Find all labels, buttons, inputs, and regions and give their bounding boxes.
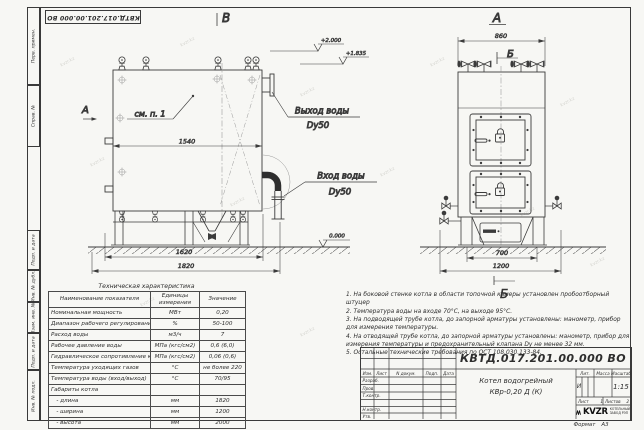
table-row: - высотамм2000 [49, 418, 246, 429]
support-frame [111, 211, 250, 245]
ground-hatch [88, 248, 350, 255]
note-3: 3. На подводящей трубе котла, до запорно… [346, 317, 633, 333]
dim-700: 700 [496, 249, 508, 257]
format-value: А3 [601, 422, 608, 428]
product-name-line2: КВр-0,20 Д (К) [490, 387, 543, 398]
spec-table: Наименование показателя Единицы измерени… [48, 291, 246, 429]
table-row: Номинальная мощностьМВт0,20 [49, 308, 246, 319]
stamp-designation: КВТД.017.201.00.000 ВО [456, 348, 630, 369]
table-header-row: Наименование показателя Единицы измерени… [49, 292, 246, 308]
stamp-col-doc: N докум. [389, 369, 423, 377]
stamp-scale-value: 1:15 [612, 377, 630, 397]
stamp-product-name: Котел водогрейный КВр-0,20 Д (К) [456, 369, 576, 426]
outlet-label: Выход воды [295, 107, 349, 117]
valve-icon [215, 57, 221, 70]
lifting-eye-icon [118, 168, 127, 177]
dim-1620: 1620 [176, 248, 193, 256]
sheet-value: 1 [600, 399, 603, 404]
dim-860: 860 [495, 32, 507, 40]
stamp-lit-label: Лит. [576, 369, 594, 377]
frame-cell-podp-data-1: Подп. и дата [27, 230, 40, 270]
ground-hatch [420, 248, 606, 255]
col-header-units: Единицы измерения [151, 292, 200, 308]
side-pipe-stub [105, 186, 113, 192]
upper-furnace-door [470, 114, 531, 166]
frame-cell-label: Инв. № дубл. [31, 270, 36, 301]
boiler-front-view: А Б [420, 11, 606, 254]
stamp-lit-value: И [576, 377, 582, 397]
table-row: Рабочее давление водыМПа (кгс/см2)0,6 (6… [49, 341, 246, 352]
lifting-eye-icon [116, 114, 125, 123]
frame-cell-label: Подп. и дата [31, 234, 36, 265]
frame-cell-label: Справ. № [31, 105, 36, 127]
format-note: ФорматА3 [545, 422, 637, 428]
sheets-value: 2 [626, 399, 629, 404]
kvzr-logo: KVZR КОТЕЛЬНЫЙ ЗАВОД РЭП [576, 405, 630, 419]
side-valve-icon [442, 196, 450, 209]
front-support [458, 217, 547, 245]
sheet-label: Лист [578, 399, 589, 404]
valve-icon [253, 57, 259, 70]
side-pipe-stub [105, 138, 113, 144]
valve-icon [473, 61, 491, 72]
valve-icon [457, 61, 475, 72]
product-name-line1: Котел водогрейный [479, 376, 553, 387]
boiler-side-view [88, 57, 350, 254]
table-title: Техническая характеристика [48, 283, 245, 290]
table-row: Гидравлическое сопротивление котлаМПа (к… [49, 352, 246, 363]
table-row: Температура воды (вход/выход)°С70/95 [49, 374, 246, 385]
door-handle [475, 193, 487, 196]
logo-text: KVZR [583, 407, 608, 417]
lock-icon [498, 183, 504, 188]
stamp-row-tkontr: Т.контр. [363, 392, 389, 400]
side-valve-icon [440, 211, 448, 224]
table-row: Диапазон рабочего регулирования%50-100 [49, 319, 246, 330]
frame-cell-sprav-no: Справ. № [27, 85, 40, 147]
valve-icon [245, 57, 251, 70]
sheets-label: Листов [605, 399, 621, 404]
table-row: - длинамм1820 [49, 396, 246, 407]
stamp-row-utv: Утв. [363, 413, 389, 419]
inlet-label: Вход воды [317, 172, 365, 182]
stamp-col-sign: Подп. [423, 369, 441, 377]
frame-cell-label: Взам. инв. № [31, 302, 36, 333]
table-row: - ширинамм1200 [49, 407, 246, 418]
drain-valve-icon [119, 211, 124, 222]
lifting-eye-icon [118, 76, 127, 85]
stamp-col-izm: Изм. [361, 369, 374, 377]
note-1: 1. На боковой стенке котла в области топ… [346, 292, 633, 308]
valve-icon [510, 61, 528, 72]
see-note-callout: см. п. 1 [135, 110, 166, 119]
frame-cell-podp-data-2: Подп. и дата [27, 333, 40, 370]
outlet-dn-label: Dy50 [307, 121, 329, 131]
view-a-pointer: А [81, 105, 89, 116]
col-header-name: Наименование показателя [49, 292, 151, 308]
note-2: 2. Температура воды на входе 70°С, на вы… [346, 309, 633, 317]
door-handle [475, 139, 487, 142]
drain-valve-icon [240, 211, 245, 222]
frame-cell-perv-primen: Перв. примен. [27, 7, 40, 85]
stamp-col-list: Лист [374, 369, 389, 377]
elevation-mark-mid: +1.835 [346, 51, 367, 57]
logo-caption-line2: ЗАВОД РЭП [610, 411, 628, 415]
stamp-row-razrab: Разраб. [363, 377, 389, 385]
frame-cell-label: Перв. примен. [31, 29, 36, 64]
valve-icon [119, 57, 125, 70]
table-row: Расход водым3/ч7 [49, 330, 246, 341]
lock-icon [498, 129, 504, 134]
frame-cell-inv-dubl: Инв. № дубл. [27, 270, 40, 302]
dim-1200: 1200 [493, 262, 510, 270]
section-b-marker-top: Б [507, 49, 514, 60]
stamp-scale-label: Масштаб [612, 369, 630, 377]
drawing-sheet: kvzr.kz kvzr.kz kvzr.kz kvzr.kz kvzr.kz … [0, 0, 644, 430]
spring-icon [576, 407, 581, 418]
stamp-mass-label: Масса [594, 369, 612, 377]
inlet-elbow [262, 155, 290, 219]
view-a-title: А [492, 11, 501, 25]
drain-valve-icon [152, 211, 157, 222]
lower-furnace-door [470, 171, 531, 214]
table-row: Габариты котла [49, 385, 246, 396]
side-valve-icon [553, 196, 561, 209]
frame-cell-label: Подп. и дата [31, 336, 36, 367]
elevation-mark-top: +2.000 [321, 38, 342, 44]
frame-cell-inv-podl: Инв. № подл. [27, 370, 40, 421]
format-label: Формат [574, 422, 596, 428]
drain-valve-icon [230, 211, 235, 222]
frame-cell-vzam-inv: Взам. инв. № [27, 302, 40, 333]
valve-icon [143, 57, 149, 70]
dim-1820: 1820 [178, 262, 195, 270]
table-row: Температура уходящих газов°Сне более 220 [49, 363, 246, 374]
frame-cell-label: Инв. № подл. [31, 380, 36, 412]
stamp-col-date: Дата [441, 369, 456, 377]
stamp-sheets-cell: Листов 2 [605, 397, 629, 405]
title-block: КВТД.017.201.00.000 ВО Котел водогрейный… [360, 347, 632, 421]
view-b-title: В [222, 11, 230, 25]
inlet-dn-label: Dy50 [329, 188, 351, 198]
stamp-row-prov: Пров. [363, 385, 389, 393]
side-view-dimensions: 1540 1620 1820 +2.000 +1.835 0.000 [92, 38, 369, 274]
dim-1540: 1540 [179, 138, 196, 146]
col-header-value: Значение [200, 292, 246, 308]
elevation-mark-zero: 0.000 [329, 234, 345, 240]
lifting-eye-icon [248, 76, 257, 85]
logo-caption: КОТЕЛЬНЫЙ ЗАВОД РЭП [610, 408, 630, 416]
valve-icon [526, 61, 544, 72]
stamp-sheet-cell: Лист 1 [578, 397, 603, 405]
